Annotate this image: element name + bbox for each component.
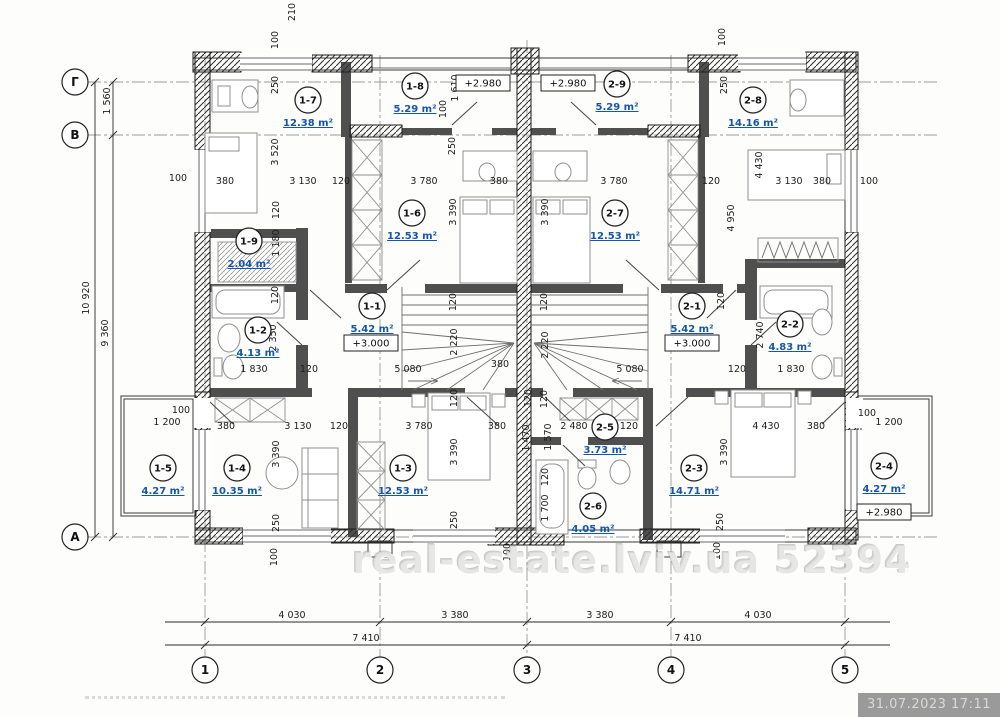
axis-col-label: 5	[841, 663, 849, 677]
room-area: 5.42 m²	[351, 324, 394, 335]
room-number: 2-5	[596, 423, 614, 434]
axis-col-label: 1	[201, 663, 209, 677]
dim-label: 9 360	[100, 319, 111, 346]
dim-label: 120	[716, 292, 727, 310]
room-area: 3.73 m²	[584, 445, 627, 456]
dim-label: 100	[502, 543, 513, 561]
dim-label: 2 740	[755, 321, 766, 348]
dim-label: 100	[858, 408, 876, 419]
dim-label: 250	[271, 514, 282, 532]
dim-label: 1 560	[102, 87, 113, 114]
dim-label: 100	[169, 173, 187, 184]
dim-label: 1 180	[271, 229, 282, 256]
dim-label: 250	[270, 76, 281, 94]
room-number: 2-9	[608, 80, 626, 91]
dim-label: 7 410	[674, 633, 701, 644]
dim-label: 120	[539, 293, 550, 311]
elevation-value: +2.980	[464, 79, 501, 90]
room-area: 4.13 m²	[237, 348, 280, 359]
dim-label: 3 780	[405, 421, 432, 432]
room-number: 1-9	[240, 237, 258, 248]
room-area: 5.29 m²	[596, 102, 639, 113]
dim-label: 120	[330, 421, 348, 432]
dim-label: 120	[300, 364, 318, 375]
axis-markers: ГВА12345	[62, 69, 858, 683]
dim-label: 3 130	[289, 176, 316, 187]
floor-plan-page: 1003803 1301203 7803803 7801203 13038010…	[0, 0, 1000, 717]
dim-label: 2 480	[560, 421, 587, 432]
dim-label: 120	[449, 389, 460, 407]
axis-row-label: Г	[71, 75, 79, 89]
room-number: 1-7	[299, 96, 317, 107]
axis-row-label: А	[70, 530, 80, 544]
axis-col-label: 3	[523, 663, 531, 677]
dim-label: 210	[287, 3, 298, 21]
room-area: 12.53 m²	[590, 231, 640, 242]
dim-label: 100	[712, 542, 723, 560]
dim-label: 1 200	[875, 417, 902, 428]
room-area: 12.53 m²	[378, 486, 428, 497]
room-number: 1-8	[406, 82, 424, 93]
dim-label: 100	[438, 100, 449, 118]
room-number: 1-1	[363, 302, 381, 313]
dim-label: 250	[715, 513, 726, 531]
dim-label: 5 080	[616, 364, 643, 375]
room-number: 1-3	[394, 464, 412, 475]
dim-label: 1 830	[777, 364, 804, 375]
dim-label: 250	[449, 511, 460, 529]
dim-label: 380	[490, 176, 508, 187]
timestamp-overlay: 31.07.2023 17:11	[858, 693, 1000, 717]
dim-label: 2 220	[540, 331, 551, 358]
dim-label: 120	[728, 364, 746, 375]
dim-label: 1 470	[521, 424, 532, 451]
elevation-value: +3.000	[352, 339, 389, 350]
room-number: 2-2	[781, 320, 799, 331]
dim-label: 120	[332, 176, 350, 187]
dim-label: 1 830	[240, 364, 267, 375]
dim-label: 3 390	[540, 198, 551, 225]
dim-label: 380	[488, 421, 506, 432]
scan-artifact-dots	[85, 696, 505, 699]
dim-label: 100	[172, 405, 190, 416]
room-area: 5.29 m²	[394, 104, 437, 115]
dim-label: 4 430	[752, 421, 779, 432]
room-area: 4.05 m²	[572, 524, 615, 535]
dim-label: 3 780	[600, 176, 627, 187]
room-area: 10.35 m²	[212, 486, 262, 497]
dim-label: 380	[807, 421, 825, 432]
dim-label: 120	[523, 389, 534, 407]
room-area: 14.71 m²	[669, 486, 719, 497]
floor-plan-drawing: 1003803 1301203 7803803 7801203 13038010…	[0, 0, 1000, 717]
dim-label: 100	[269, 548, 280, 566]
dim-label: 3 380	[586, 610, 613, 621]
room-area: 5.42 m²	[671, 324, 714, 335]
dim-label: 1 200	[153, 417, 180, 428]
dim-label: 3 390	[271, 440, 282, 467]
dim-label: 380	[813, 176, 831, 187]
dim-label: 10 920	[81, 281, 92, 314]
room-area: 2.04 m²	[228, 259, 271, 270]
room-number: 2-1	[683, 302, 701, 313]
elevation-value: +3.000	[673, 339, 710, 350]
room-number: 1-4	[228, 464, 246, 475]
room-number: 1-6	[403, 209, 421, 220]
dim-label: 120	[540, 468, 551, 486]
dim-label: 380	[216, 176, 234, 187]
dim-label: 3 130	[775, 176, 802, 187]
room-area: 12.38 m²	[283, 118, 333, 129]
dim-label: 100	[270, 31, 281, 49]
dim-label: 100	[717, 28, 728, 46]
dim-label: 4 030	[744, 610, 771, 621]
room-area: 4.27 m²	[142, 486, 185, 497]
room-area: 4.27 m²	[863, 484, 906, 495]
axis-col-label: 2	[376, 663, 384, 677]
room-area: 4.83 m²	[769, 342, 812, 353]
dim-label: 120	[620, 421, 638, 432]
room-number: 2-4	[875, 462, 893, 473]
room-number: 2-6	[584, 502, 602, 513]
dim-label: 3 520	[270, 138, 281, 165]
dim-label: 250	[719, 76, 730, 94]
dim-label: 1 700	[540, 494, 551, 521]
room-area: 12.53 m²	[387, 231, 437, 242]
room-number: 2-3	[685, 464, 703, 475]
dim-label: 4 950	[726, 204, 737, 231]
dim-label: 120	[270, 286, 281, 304]
dim-label: 3 780	[410, 176, 437, 187]
dim-label: 1 570	[543, 423, 554, 450]
room-number: 2-7	[606, 209, 624, 220]
dim-label: 3 390	[448, 198, 459, 225]
dim-label: 5 080	[394, 364, 421, 375]
dim-label: 120	[448, 293, 459, 311]
dim-label: 120	[539, 390, 550, 408]
dim-label: 2 220	[449, 328, 460, 355]
room-number: 2-8	[744, 96, 762, 107]
dim-label: 3 390	[719, 438, 730, 465]
dim-label: 380	[217, 421, 235, 432]
dim-label: 120	[271, 201, 282, 219]
dim-label: 7 410	[352, 633, 379, 644]
dim-label: 3 390	[449, 438, 460, 465]
axis-col-label: 4	[667, 663, 675, 677]
room-number: 1-5	[154, 464, 172, 475]
dim-label: 4 030	[278, 610, 305, 621]
room-number: 1-2	[249, 326, 267, 337]
elevation-value: +2.980	[865, 508, 902, 519]
dim-label: 380	[491, 359, 509, 370]
axis-row-label: В	[70, 128, 79, 142]
dim-label: 3 130	[284, 421, 311, 432]
dim-label: 250	[447, 137, 458, 155]
dim-label: 3 380	[441, 610, 468, 621]
room-area: 14.16 m²	[728, 118, 778, 129]
dim-label: 120	[702, 176, 720, 187]
elevation-value: +2.980	[549, 79, 586, 90]
dim-label: 100	[860, 176, 878, 187]
dim-label: 4 430	[754, 151, 765, 178]
